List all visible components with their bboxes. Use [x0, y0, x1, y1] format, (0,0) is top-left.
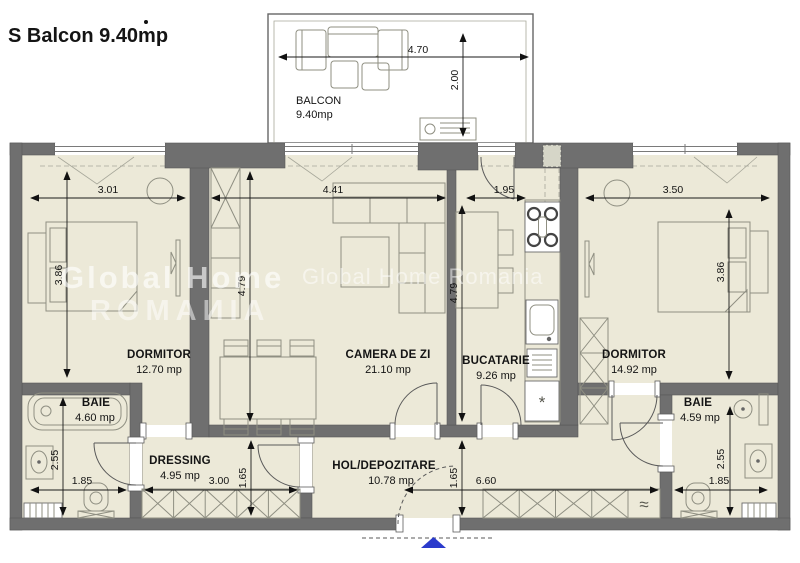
room-label-dressing: DRESSING [149, 455, 211, 467]
dot-marker [144, 20, 148, 24]
floor-plan: S Balcon 9.40mp BALCON 9.40mp 4.70 [0, 0, 800, 563]
svg-text:4.70: 4.70 [408, 44, 429, 56]
svg-text:3.00: 3.00 [209, 475, 230, 487]
room-label-baie-left: BAIE [82, 397, 110, 409]
room-label-bucatarie: BUCATARIE [462, 355, 530, 367]
plan-title: S Balcon 9.40mp [8, 25, 168, 47]
room-label-camera: CAMERA DE ZI [345, 349, 430, 361]
room-label-baie-right: BAIE [684, 397, 712, 409]
room-area-dressing: 4.95 mp [160, 470, 200, 482]
watermark-line1: Global Home [60, 260, 284, 295]
svg-text:6.60: 6.60 [476, 475, 497, 487]
svg-text:4.41: 4.41 [323, 184, 344, 196]
fridge-icon: * [525, 381, 559, 421]
svg-text:1.85: 1.85 [709, 475, 730, 487]
room-label-hol: HOL/DEPOZITARE [332, 460, 436, 472]
svg-text:2.00: 2.00 [449, 70, 461, 91]
balcony: BALCON 9.40mp 4.70 2.00 [268, 14, 533, 143]
svg-text:2.55: 2.55 [715, 449, 727, 470]
room-area-dormitor-right: 14.92 mp [611, 364, 657, 376]
radiator-icon [742, 503, 776, 518]
svg-text:3.86: 3.86 [715, 262, 727, 283]
room-area-baie-left: 4.60 mp [75, 412, 115, 424]
room-area-camera: 21.10 mp [365, 364, 411, 376]
svg-text:*: * [539, 393, 546, 412]
watermark-line2: ROMAИIA [90, 295, 270, 327]
room-label-dormitor-left: DORMITOR [127, 349, 191, 361]
svg-text:2.55: 2.55 [49, 450, 61, 471]
room-area-bucatarie: 9.26 mp [476, 370, 516, 382]
room-label-dormitor-right: DORMITOR [602, 349, 666, 361]
entrance-arrow-icon [421, 537, 446, 548]
dishwasher-icon [527, 349, 557, 377]
room-area-dormitor-left: 12.70 mp [136, 364, 182, 376]
svg-text:≈: ≈ [639, 495, 648, 514]
watermark-secondary: Global Home Romania [302, 264, 544, 289]
room-area-balcon: 9.40mp [296, 109, 333, 121]
room-area-baie-right: 4.59 mp [680, 412, 720, 424]
svg-text:1.65: 1.65 [237, 468, 249, 489]
svg-text:1.65: 1.65 [448, 468, 460, 489]
vent-shaft [543, 145, 561, 167]
kitchen-sink-icon [526, 300, 558, 344]
svg-text:3.50: 3.50 [663, 184, 684, 196]
svg-text:1.95: 1.95 [494, 184, 515, 196]
room-label-balcon: BALCON [296, 95, 341, 107]
svg-text:3.01: 3.01 [98, 184, 119, 196]
room-area-hol: 10.78 mp [368, 475, 414, 487]
radiator-icon [24, 503, 62, 518]
svg-text:1.85: 1.85 [72, 475, 93, 487]
hob-icon [525, 202, 560, 252]
